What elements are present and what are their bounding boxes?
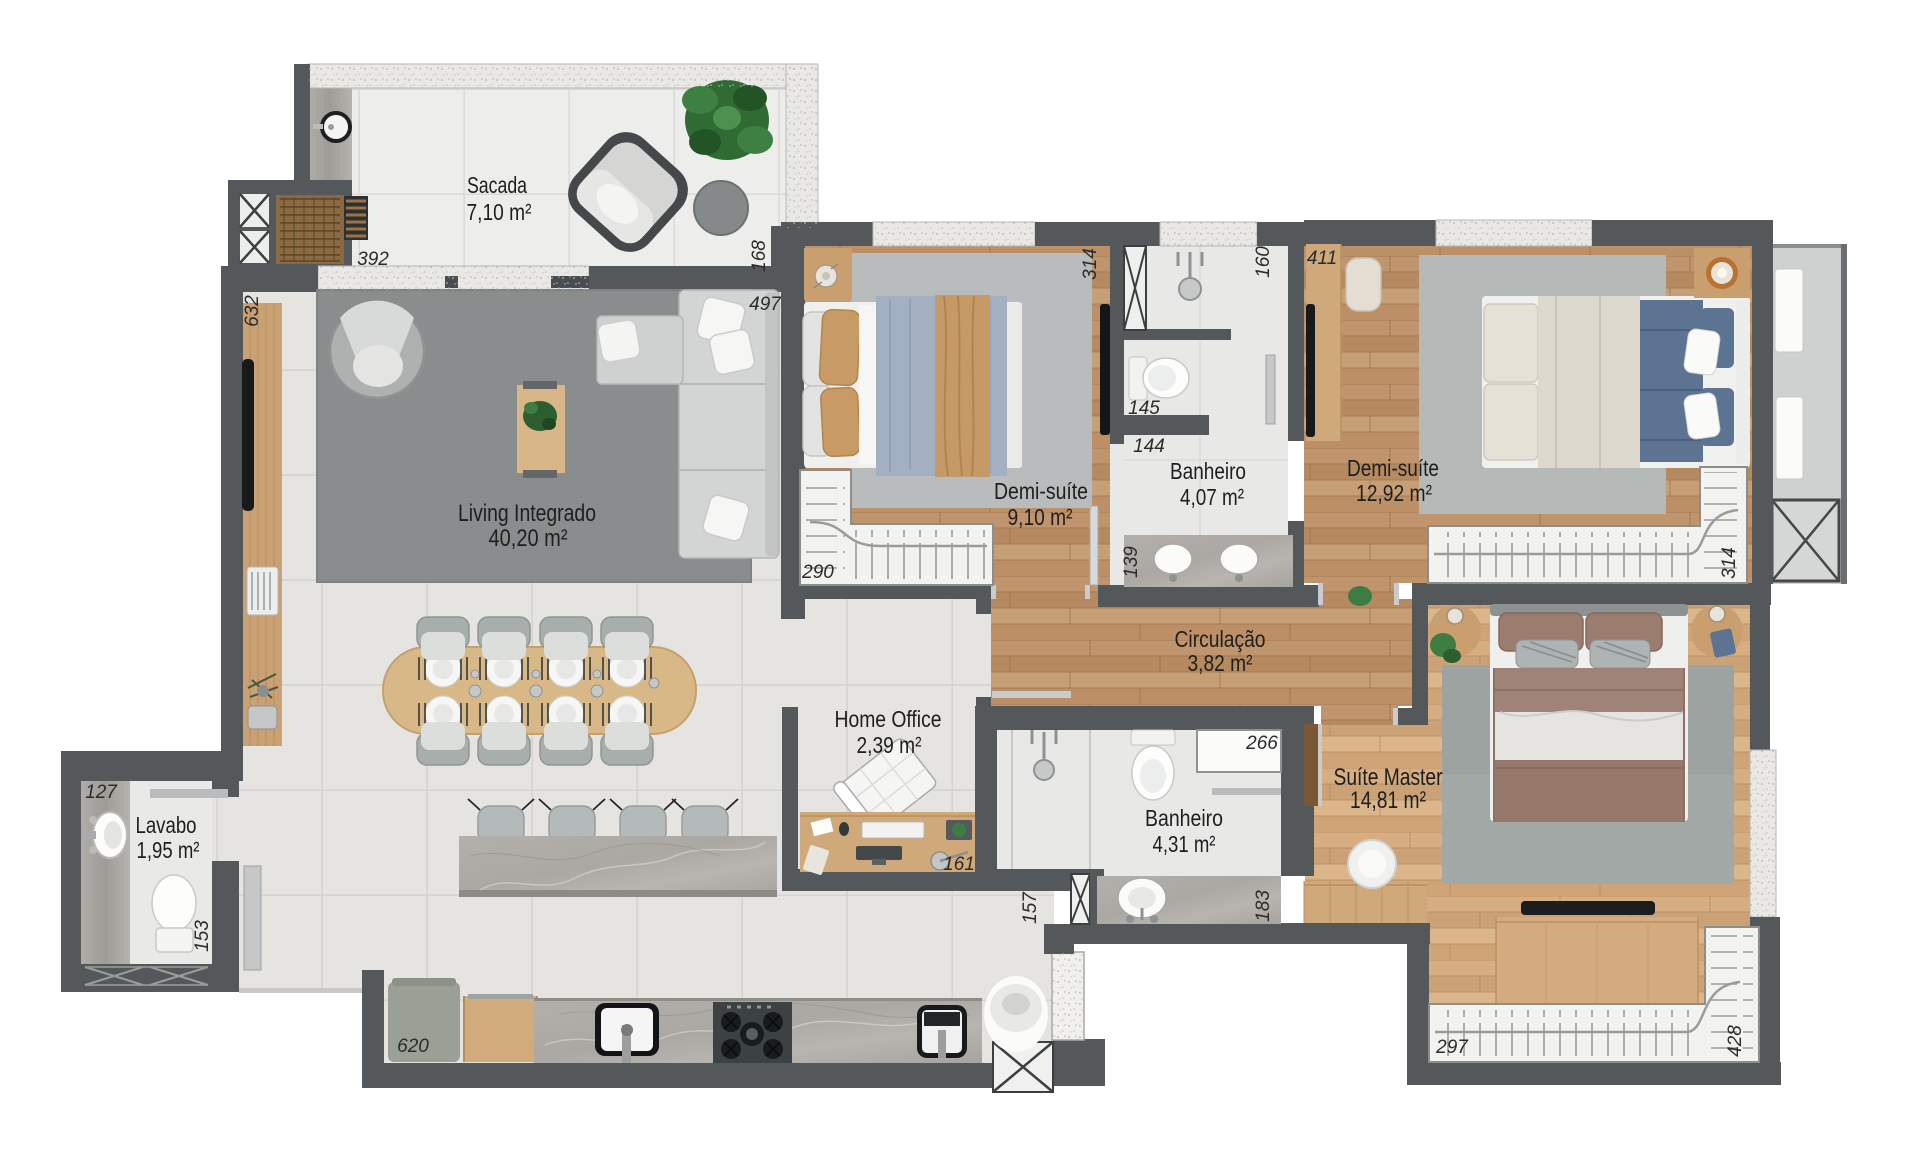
svg-text:Home Office: Home Office xyxy=(835,706,942,732)
svg-text:Banheiro: Banheiro xyxy=(1170,458,1246,484)
svg-text:139: 139 xyxy=(1121,546,1142,578)
svg-text:127: 127 xyxy=(85,782,118,803)
svg-text:9,10 m²: 9,10 m² xyxy=(1008,504,1073,530)
svg-text:Living Integrado: Living Integrado xyxy=(458,500,596,527)
svg-text:157: 157 xyxy=(1020,891,1041,924)
svg-text:12,92 m²: 12,92 m² xyxy=(1356,480,1432,506)
svg-text:Lavabo: Lavabo xyxy=(136,812,197,838)
svg-text:183: 183 xyxy=(1253,890,1274,922)
svg-text:168: 168 xyxy=(749,240,770,272)
svg-text:314: 314 xyxy=(1080,248,1101,280)
svg-text:411: 411 xyxy=(1307,248,1337,269)
svg-text:314: 314 xyxy=(1719,547,1740,579)
svg-text:Demi-suíte: Demi-suíte xyxy=(994,478,1088,504)
svg-text:Demi-suíte: Demi-suíte xyxy=(1347,455,1439,481)
svg-text:266: 266 xyxy=(1245,733,1278,754)
svg-text:4,07 m²: 4,07 m² xyxy=(1180,484,1244,510)
svg-text:Sacada: Sacada xyxy=(467,172,527,198)
svg-text:4,31 m²: 4,31 m² xyxy=(1153,831,1216,857)
svg-text:3,82 m²: 3,82 m² xyxy=(1188,650,1253,676)
svg-text:Banheiro: Banheiro xyxy=(1145,805,1223,831)
svg-text:160: 160 xyxy=(1253,246,1274,278)
svg-text:14,81 m²: 14,81 m² xyxy=(1350,787,1426,814)
svg-text:153: 153 xyxy=(192,920,213,952)
svg-text:497: 497 xyxy=(749,294,782,315)
svg-text:1,95 m²: 1,95 m² xyxy=(137,837,200,863)
svg-text:297: 297 xyxy=(1435,1037,1469,1058)
svg-text:Circulação: Circulação xyxy=(1175,626,1266,652)
svg-text:2,39 m²: 2,39 m² xyxy=(857,732,922,758)
svg-text:145: 145 xyxy=(1128,398,1160,419)
svg-text:161: 161 xyxy=(943,854,975,875)
svg-text:632: 632 xyxy=(242,295,263,327)
svg-text:620: 620 xyxy=(397,1036,429,1057)
svg-text:7,10 m²: 7,10 m² xyxy=(467,199,532,225)
svg-text:428: 428 xyxy=(1725,1025,1746,1057)
svg-text:40,20 m²: 40,20 m² xyxy=(489,525,568,552)
svg-text:290: 290 xyxy=(801,562,834,583)
svg-text:144: 144 xyxy=(1133,436,1165,457)
